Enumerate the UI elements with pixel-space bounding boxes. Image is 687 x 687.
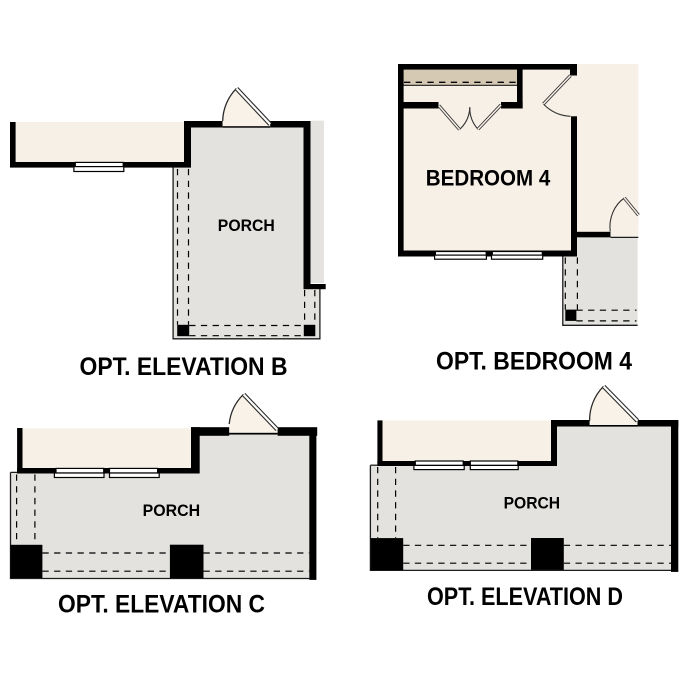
svg-text:PORCH: PORCH xyxy=(218,216,275,235)
svg-text:OPT. ELEVATION D: OPT. ELEVATION D xyxy=(427,583,623,611)
svg-text:OPT. ELEVATION B: OPT. ELEVATION B xyxy=(80,353,288,381)
svg-text:OPT. ELEVATION C: OPT. ELEVATION C xyxy=(58,590,265,618)
svg-text:PORCH: PORCH xyxy=(143,501,201,520)
svg-text:PORCH: PORCH xyxy=(504,494,560,513)
svg-text:OPT. BEDROOM 4: OPT. BEDROOM 4 xyxy=(436,348,632,376)
svg-text:BEDROOM 4: BEDROOM 4 xyxy=(426,165,551,190)
